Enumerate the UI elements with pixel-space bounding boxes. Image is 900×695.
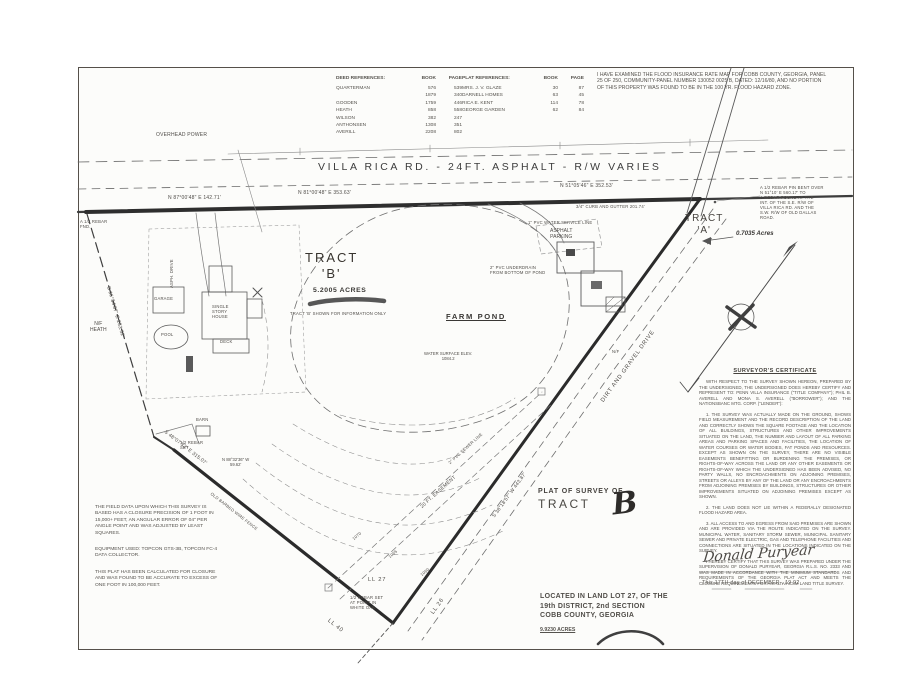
- label-nf-east: N/F: [612, 350, 619, 355]
- villa-rica-road: [78, 150, 852, 212]
- label-tract-b-acres: 5.2005 ACRES: [313, 287, 366, 295]
- deed-cell: 858: [410, 107, 436, 114]
- plat-rows: MRS. J. V. GLAZE3087DARNELL HOMES6345RIC…: [462, 85, 584, 115]
- label-tract-b: TRACT 'B': [305, 250, 358, 282]
- deed-cell: 1759: [410, 100, 436, 107]
- label-overhead-power: OVERHEAD POWER: [156, 133, 207, 139]
- deed-cell: 382: [410, 115, 436, 122]
- contour-lines: [243, 300, 503, 555]
- deed-cell: HEATH: [336, 107, 410, 114]
- location-block: LOCATED IN LAND LOT 27, OF THE 19th DIST…: [540, 592, 668, 621]
- label-deck: DECK: [220, 340, 232, 345]
- label-water-elevation: WATER SURFACE ELEV. 1084.2: [424, 352, 472, 362]
- label-bearing-road-right: N 51°05'46" E 352.53': [560, 184, 613, 190]
- label-tract-b-note: TRACT 'B' SHOWN FOR INFORMATION ONLY: [290, 312, 386, 317]
- label-rebar-set: 1/2 REBAR SET: [180, 441, 203, 451]
- certificate-paragraph: WITH RESPECT TO THE SURVEY SHOWN HEREON,…: [699, 379, 851, 407]
- label-rebar-found: A 1/2 REBAR FND.: [80, 220, 107, 230]
- flood-insurance-note: I HAVE EXAMINED THE FLOOD INSURANCE RATE…: [597, 72, 829, 91]
- deed-row: WILSON382247: [336, 115, 462, 122]
- label-asphalt-drive: ASPH. DRIVE: [170, 259, 175, 288]
- deed-cell: [336, 92, 410, 99]
- label-garage: GARAGE: [154, 297, 173, 302]
- label-water-service: 1" PVC WATER SERVICE LINE: [528, 221, 592, 226]
- plat-cell: 78: [558, 100, 584, 107]
- deed-references-table: DEED REFERENCES: BOOK PAGE QUARTERMAN576…: [336, 76, 462, 137]
- location-line-1: LOCATED IN LAND LOT 27, OF THE: [540, 592, 668, 602]
- deed-cell: GOODEN: [336, 100, 410, 107]
- plat-cell: RICA E. KENT: [462, 100, 532, 107]
- deed-cell: 802: [436, 129, 462, 136]
- deed-cell: 539: [436, 85, 462, 92]
- field-note: THE FIELD DATA UPON WHICH THIS SURVEY IS…: [95, 505, 223, 537]
- plat-cell: DARNELL HOMES: [462, 92, 532, 99]
- label-nf-heath: N/F HEATH: [90, 322, 107, 334]
- plat-row: RICA E. KENT11478: [462, 100, 584, 107]
- handwritten-tract-letter: B: [610, 485, 639, 523]
- deed-row: ANTHONSEN1308351: [336, 122, 462, 129]
- plat-col-book: BOOK: [532, 76, 558, 81]
- label-land-lot-27: LL 27: [368, 577, 386, 584]
- plat-title: PLAT REFERENCES:: [462, 76, 532, 81]
- plat-row: MRS. J. V. GLAZE3087: [462, 85, 584, 92]
- deed-cell: 1879: [410, 92, 436, 99]
- label-bearing-jog: N 88°32'36" W 59.62': [222, 458, 249, 468]
- label-asphalt-parking: ASPHALT PARKING: [550, 229, 572, 241]
- deed-cell: 2208: [410, 129, 436, 136]
- label-curb-gutter: 3/4" CURB AND GUTTER 201.74': [576, 205, 645, 210]
- plat-row: DARNELL HOMES6345: [462, 92, 584, 99]
- plat-row: GEORGE GARDEN6284: [462, 107, 584, 114]
- label-road-name: VILLA RICA RD. - 24FT. ASPHALT - R/W VAR…: [318, 161, 661, 173]
- deed-cell: QUARTERMAN: [336, 85, 410, 92]
- deed-cell: 558: [436, 107, 462, 114]
- plat-cell: 87: [558, 85, 584, 92]
- plat-references-table: PLAT REFERENCES: BOOK PAGE MRS. J. V. GL…: [462, 76, 584, 115]
- plat-cell: MRS. J. V. GLAZE: [462, 85, 532, 92]
- label-bearing-road-left: N 87°00'48" E 142.71': [168, 196, 221, 202]
- label-pool: POOL: [161, 333, 173, 338]
- deed-cell: ANTHONSEN: [336, 122, 410, 129]
- deed-col-book: BOOK: [410, 76, 436, 81]
- label-pond-underdrain: 2" PVC UNDERDRAIN FROM BOTTOM OF POND: [490, 266, 545, 276]
- certificate-paragraph: 2. THE LAND DOES NOT LIE WITHIN A FEDERA…: [699, 505, 851, 516]
- deed-row: 1879340: [336, 92, 462, 99]
- deed-row: GOODEN1759446: [336, 100, 462, 107]
- label-tract-a-acres: 0.7035 Acres: [736, 230, 774, 237]
- deed-row: AVERILL2208802: [336, 129, 462, 136]
- field-data-notes: THE FIELD DATA UPON WHICH THIS SURVEY IS…: [95, 505, 223, 599]
- deed-row: HEATH858558: [336, 107, 462, 114]
- deed-cell: AVERILL: [336, 129, 410, 136]
- certificate-paragraph: 1. THE SURVEY WAS ACTUALLY MADE ON THE G…: [699, 412, 851, 500]
- certificate-date: This 17TH day of DECEMBER , 19 92: [702, 580, 800, 586]
- plat-cell: 30: [532, 85, 558, 92]
- field-note: THIS PLAT HAS BEEN CALCULATED FOR CLOSUR…: [95, 570, 223, 589]
- deed-cell: WILSON: [336, 115, 410, 122]
- label-tract-a: TRACT 'A': [685, 213, 723, 237]
- deed-cell: 340: [436, 92, 462, 99]
- plat-cell: 84: [558, 107, 584, 114]
- total-acreage: 9.9230 ACRES: [540, 627, 575, 633]
- scanned-plat-page: DEED REFERENCES: BOOK PAGE QUARTERMAN576…: [0, 0, 900, 695]
- plat-cell: GEORGE GARDEN: [462, 107, 532, 114]
- label-vertex-note: 1/2 REBAR SET AT POINT IN WHITE OAK: [350, 596, 383, 611]
- plat-cell: 45: [558, 92, 584, 99]
- field-note: EQUIPMENT USED: TOPCON GTS-3B, TOPCON FC…: [95, 547, 223, 560]
- deed-col-page: PAGE: [436, 76, 462, 81]
- acres-underline: [310, 299, 384, 304]
- deed-cell: 1308: [410, 122, 436, 129]
- certificate-title: SURVEYOR'S CERTIFICATE: [699, 368, 851, 374]
- scale-arc: [598, 631, 663, 644]
- label-house: SINGLE STORY HOUSE: [212, 305, 229, 320]
- label-farm-pond: FARM POND: [446, 313, 506, 322]
- house-complex: [146, 213, 306, 436]
- deed-rows: QUARTERMAN5765391879340GOODEN1759446HEAT…: [336, 85, 462, 137]
- farm-pond-outline: [291, 204, 570, 432]
- deed-title: DEED REFERENCES:: [336, 76, 410, 81]
- gravel-drive-edges: [408, 209, 726, 640]
- label-barn: BARN: [196, 418, 208, 423]
- deed-cell: 446: [436, 100, 462, 107]
- plat-cell: 63: [532, 92, 558, 99]
- location-line-3: COBB COUNTY, GEORGIA: [540, 611, 668, 621]
- deed-cell: 247: [436, 115, 462, 122]
- deed-cell: 576: [410, 85, 436, 92]
- deed-cell: 351: [436, 122, 462, 129]
- plat-cell: 62: [532, 107, 558, 114]
- label-bearing-road-mid: N 81°00'48" E 353.63': [298, 191, 351, 197]
- deed-row: QUARTERMAN576539: [336, 85, 462, 92]
- label-rebar-bent-note: A 1/2 REBAR PIN BENT OVER N 51°10' E 560…: [760, 186, 824, 221]
- plat-col-page: PAGE: [558, 76, 584, 81]
- location-line-2: 19th DISTRICT, 2nd SECTION: [540, 602, 668, 612]
- plat-cell: 114: [532, 100, 558, 107]
